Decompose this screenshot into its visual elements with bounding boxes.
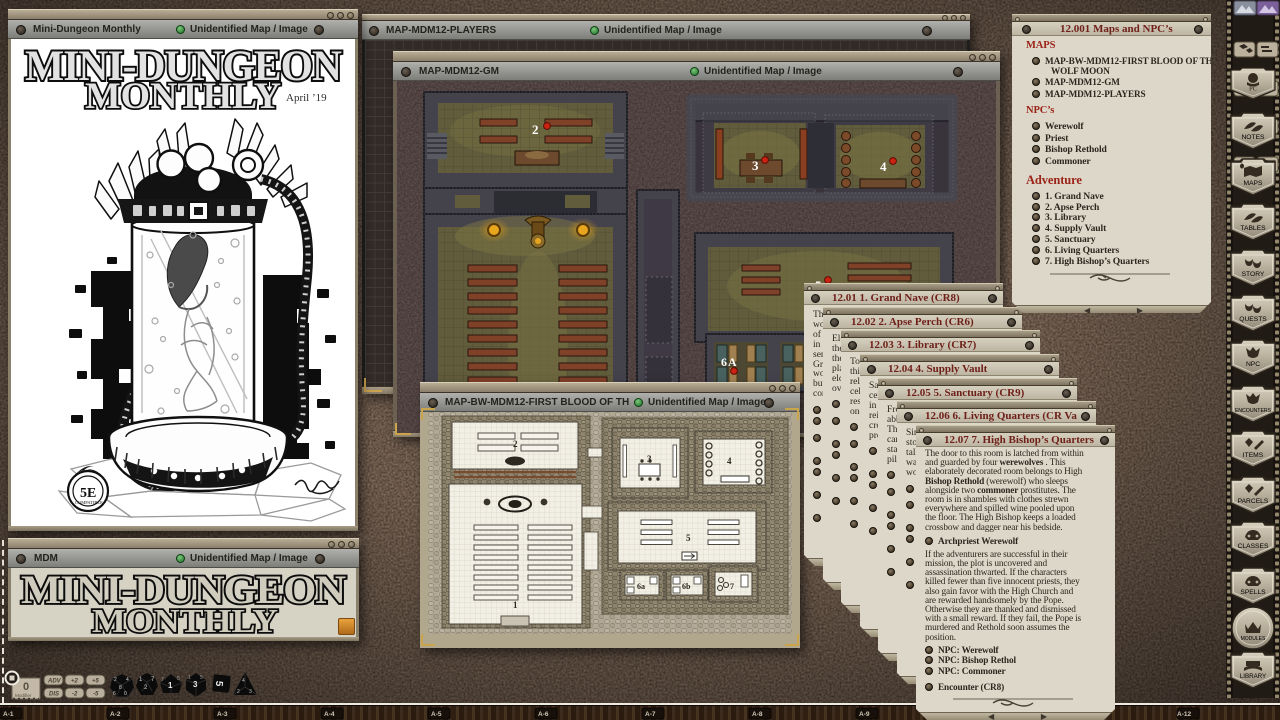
svg-text:SPELLS: SPELLS <box>1240 589 1266 596</box>
svg-text:2: 2 <box>532 122 539 137</box>
svg-text:A-7: A-7 <box>645 711 656 718</box>
svg-text:ADV: ADV <box>47 679 62 685</box>
svg-text:A-5: A-5 <box>431 711 442 718</box>
svg-text:2: 2 <box>114 677 117 683</box>
svg-text:STORY: STORY <box>1242 271 1265 278</box>
svg-text:NOTES: NOTES <box>1241 134 1265 141</box>
svg-text:2: 2 <box>237 689 240 695</box>
svg-text:0: 0 <box>124 691 127 697</box>
svg-text:1: 1 <box>188 675 191 681</box>
svg-text:3: 3 <box>249 689 252 695</box>
svg-text:NPC: NPC <box>1246 361 1260 368</box>
svg-text:CLASSES: CLASSES <box>1238 543 1269 550</box>
svg-text:A-1: A-1 <box>3 711 14 718</box>
svg-text:6 A: 6 A <box>721 355 737 369</box>
svg-text:8: 8 <box>119 685 122 691</box>
svg-text:MONTHLY: MONTHLY <box>92 603 278 637</box>
svg-text:0: 0 <box>23 681 29 693</box>
svg-text:A-8: A-8 <box>752 711 763 718</box>
svg-text:3: 3 <box>193 680 198 689</box>
svg-text:COMPATIBLE: COMPATIBLE <box>75 500 103 505</box>
svg-text:ITEMS: ITEMS <box>1243 452 1264 459</box>
svg-text:4: 4 <box>880 159 887 174</box>
svg-text:A-12: A-12 <box>1177 711 1191 718</box>
svg-text:April ’19: April ’19 <box>286 92 327 104</box>
svg-text:A-6: A-6 <box>538 711 549 718</box>
svg-text:4: 4 <box>727 456 732 466</box>
svg-text:6b: 6b <box>682 582 691 591</box>
svg-text:MAPS: MAPS <box>1244 180 1263 187</box>
svg-text:1: 1 <box>168 681 173 690</box>
svg-text:TABLES: TABLES <box>1240 225 1266 232</box>
svg-text:5E: 5E <box>80 486 96 501</box>
svg-text:PARCELS: PARCELS <box>1238 498 1269 505</box>
svg-text:QUESTS: QUESTS <box>1239 316 1267 323</box>
svg-text:MODULES: MODULES <box>1241 636 1266 642</box>
svg-text:DIS: DIS <box>49 692 59 698</box>
svg-text:4: 4 <box>242 678 245 684</box>
svg-text:A-9: A-9 <box>859 711 870 718</box>
svg-text:+2: +2 <box>71 679 79 685</box>
svg-text:-5: -5 <box>93 692 99 698</box>
svg-text:7: 7 <box>161 677 164 683</box>
svg-text:PC: PC <box>1249 87 1257 93</box>
svg-text:6: 6 <box>113 691 116 697</box>
svg-text:Modifier: Modifier <box>15 693 32 698</box>
svg-text:2: 2 <box>513 439 518 449</box>
svg-text:4: 4 <box>126 677 129 683</box>
svg-text:A-3: A-3 <box>217 711 228 718</box>
svg-text:5: 5 <box>200 675 203 681</box>
svg-text:LIBRARY: LIBRARY <box>1240 673 1266 680</box>
svg-text:+5: +5 <box>92 679 100 685</box>
svg-text:A-2: A-2 <box>110 711 121 718</box>
svg-text:6a: 6a <box>637 582 645 591</box>
svg-text:A-4: A-4 <box>324 711 335 718</box>
svg-text:MONTHLY: MONTHLY <box>85 76 281 117</box>
svg-text:ENCOUNTERS: ENCOUNTERS <box>1235 408 1272 414</box>
svg-text:5: 5 <box>177 676 180 682</box>
svg-text:7: 7 <box>730 582 734 591</box>
svg-text:3: 3 <box>752 158 759 173</box>
svg-text:5: 5 <box>686 533 691 543</box>
svg-text:3: 3 <box>647 454 652 464</box>
svg-text:1: 1 <box>513 600 518 610</box>
svg-text:-2: -2 <box>72 692 78 698</box>
